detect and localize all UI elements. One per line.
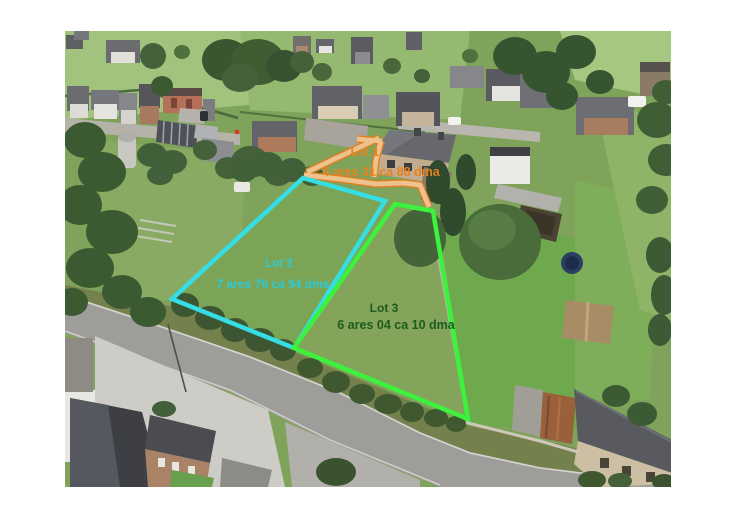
svg-text:Lot 2: Lot 2: [265, 258, 292, 270]
svg-text:Lot 3: Lot 3: [370, 301, 399, 315]
svg-text:7 ares 76 ca 94 dma: 7 ares 76 ca 94 dma: [217, 277, 330, 291]
svg-text:Lot 1: Lot 1: [351, 145, 380, 159]
svg-text:4 ares 31 ca 88 dma: 4 ares 31 ca 88 dma: [322, 165, 440, 179]
svg-text:6 ares 04 ca 10 dma: 6 ares 04 ca 10 dma: [337, 318, 455, 332]
